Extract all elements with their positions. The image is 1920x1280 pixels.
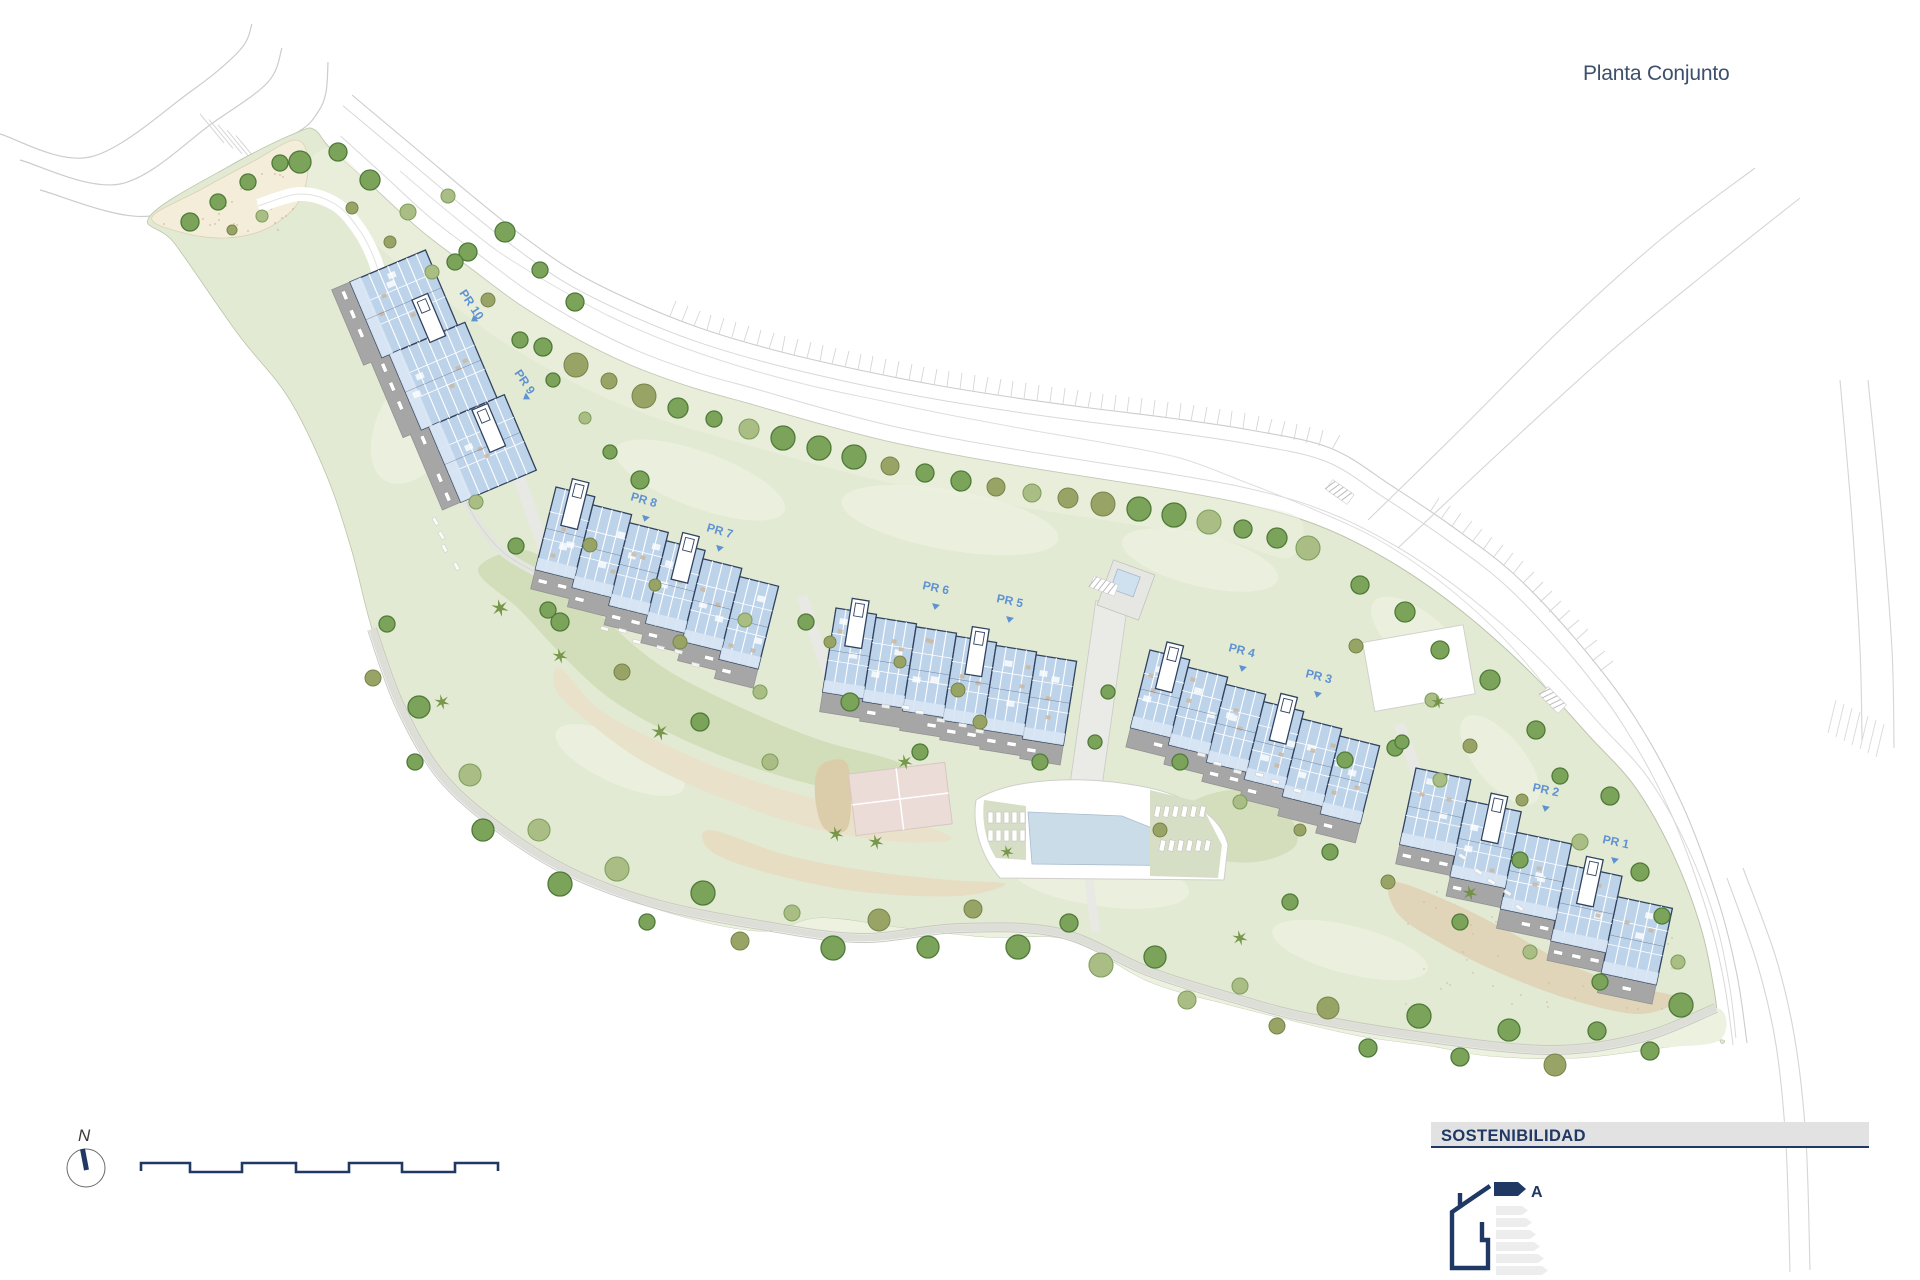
svg-text:SOSTENIBILIDAD: SOSTENIBILIDAD [1441,1127,1586,1145]
svg-text:N: N [78,1126,91,1145]
svg-text:Planta Conjunto: Planta Conjunto [1583,62,1729,85]
svg-text:A: A [1531,1184,1543,1201]
